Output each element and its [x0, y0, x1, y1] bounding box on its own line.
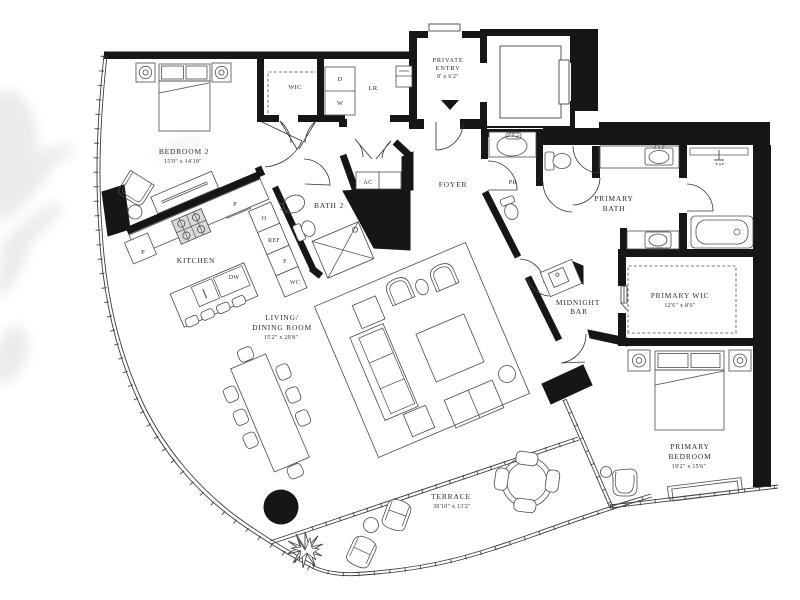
svg-text:BEDROOM: BEDROOM [668, 452, 711, 461]
svg-text:WC: WC [290, 280, 300, 286]
svg-text:PRIMARY: PRIMARY [594, 194, 633, 203]
svg-text:BEDROOM 2: BEDROOM 2 [159, 147, 209, 156]
svg-text:AC: AC [363, 179, 372, 186]
svg-text:8' x 6'2": 8' x 6'2" [437, 74, 459, 80]
svg-text:LR: LR [369, 85, 378, 92]
svg-text:F: F [283, 258, 287, 265]
svg-text:MIDNIGHT: MIDNIGHT [556, 298, 600, 307]
svg-text:KITCHEN: KITCHEN [177, 256, 216, 265]
svg-text:DINING ROOM: DINING ROOM [252, 323, 312, 332]
svg-text:P: P [141, 249, 145, 256]
svg-text:W: W [337, 100, 344, 107]
svg-text:LIVING/: LIVING/ [265, 313, 299, 322]
svg-text:PRIMARY WIC: PRIMARY WIC [651, 291, 710, 300]
svg-text:TERRACE: TERRACE [431, 492, 471, 501]
svg-text:15'2" x 20'8": 15'2" x 20'8" [264, 335, 299, 341]
svg-text:PRIMARY: PRIMARY [670, 442, 709, 451]
svg-text:PRIVATE: PRIVATE [432, 57, 463, 64]
svg-text:ENTRY: ENTRY [436, 65, 461, 72]
svg-text:WIC: WIC [288, 84, 301, 91]
svg-text:PR: PR [509, 179, 518, 186]
svg-text:P: P [233, 201, 237, 208]
svg-text:15'0" x 14'10": 15'0" x 14'10" [164, 159, 202, 165]
svg-text:D: D [338, 76, 343, 83]
svg-text:BATH: BATH [603, 204, 626, 213]
svg-text:BATH 2: BATH 2 [314, 201, 344, 210]
svg-text:12'6" x 8'6": 12'6" x 8'6" [664, 303, 695, 309]
svg-text:BAR: BAR [570, 307, 588, 316]
svg-text:19'2" x 15'6": 19'2" x 15'6" [672, 464, 707, 470]
svg-text:30'10" x 13'2": 30'10" x 13'2" [433, 504, 471, 510]
svg-text:O: O [262, 215, 267, 222]
svg-text:DW: DW [229, 275, 240, 281]
svg-text:REF: REF [268, 238, 280, 244]
svg-text:FOYER: FOYER [439, 180, 468, 189]
